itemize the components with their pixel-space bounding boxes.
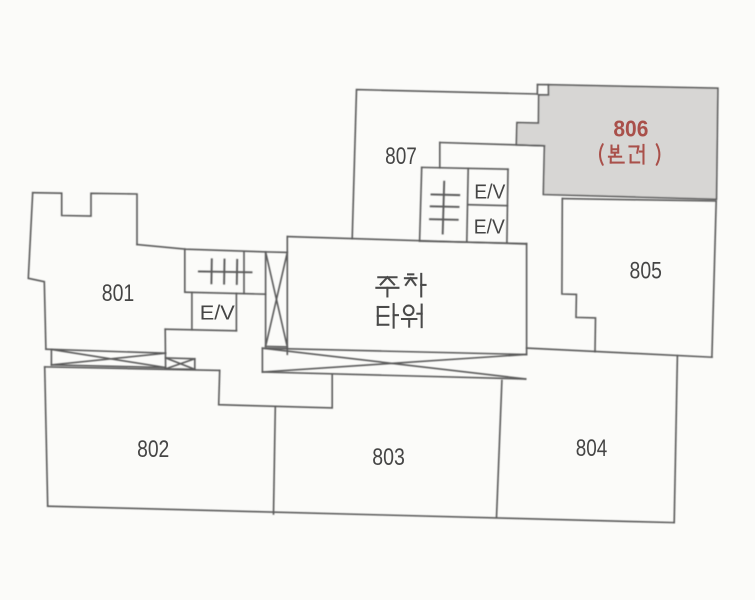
svg-text:802: 802 [137,436,169,463]
svg-text:E/V: E/V [474,181,506,203]
svg-text:807: 807 [385,143,417,170]
svg-text:803: 803 [372,444,405,471]
svg-text:806: 806 [613,115,648,141]
svg-text:801: 801 [102,280,135,307]
svg-text:805: 805 [630,258,662,285]
svg-text:804: 804 [576,435,608,462]
svg-text:E/V: E/V [200,303,236,325]
svg-text:E/V: E/V [474,217,506,239]
